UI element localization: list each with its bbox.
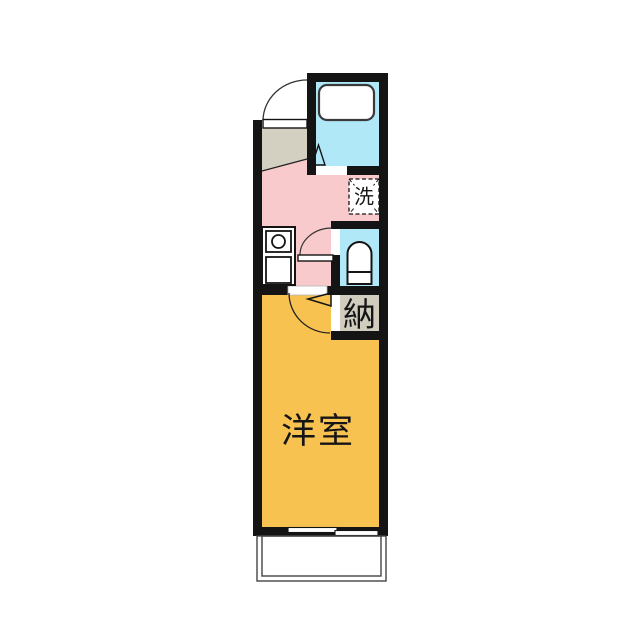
toilet-door-opening [331,229,340,255]
burner-icon [272,235,285,248]
washing-machine-space: 洗 [349,179,379,214]
floor-plan: 洗 納 洋室 [0,0,640,640]
floor-plan-canvas: 洗 納 洋室 [0,0,640,640]
wall-bathroom-top [307,73,388,82]
storage-label: 納 [343,295,376,334]
storage-door-opening [331,295,340,331]
western-room-label: 洋室 [281,412,355,452]
entry-door-swing-arc [263,80,307,121]
toilet-door-leaf [298,255,333,261]
balcony-outer-rail [257,536,386,581]
entry-door-leaf [263,120,307,129]
bathroom-door-opening [316,166,347,175]
sliding-window-right-pane [335,531,378,536]
kitchen-counter [262,227,295,285]
wall-left [253,120,262,536]
wall-right [379,73,388,536]
bathtub [319,85,374,120]
washer-label: 洗 [354,185,374,209]
wall-bathroom-left [307,73,316,175]
sink-square [266,257,291,283]
toilet-bowl-outline [348,242,372,284]
toilet-bowl-icon [348,242,372,284]
balcony [257,536,386,581]
room-door-opening [288,286,327,295]
sliding-window-left-pane [288,528,337,533]
